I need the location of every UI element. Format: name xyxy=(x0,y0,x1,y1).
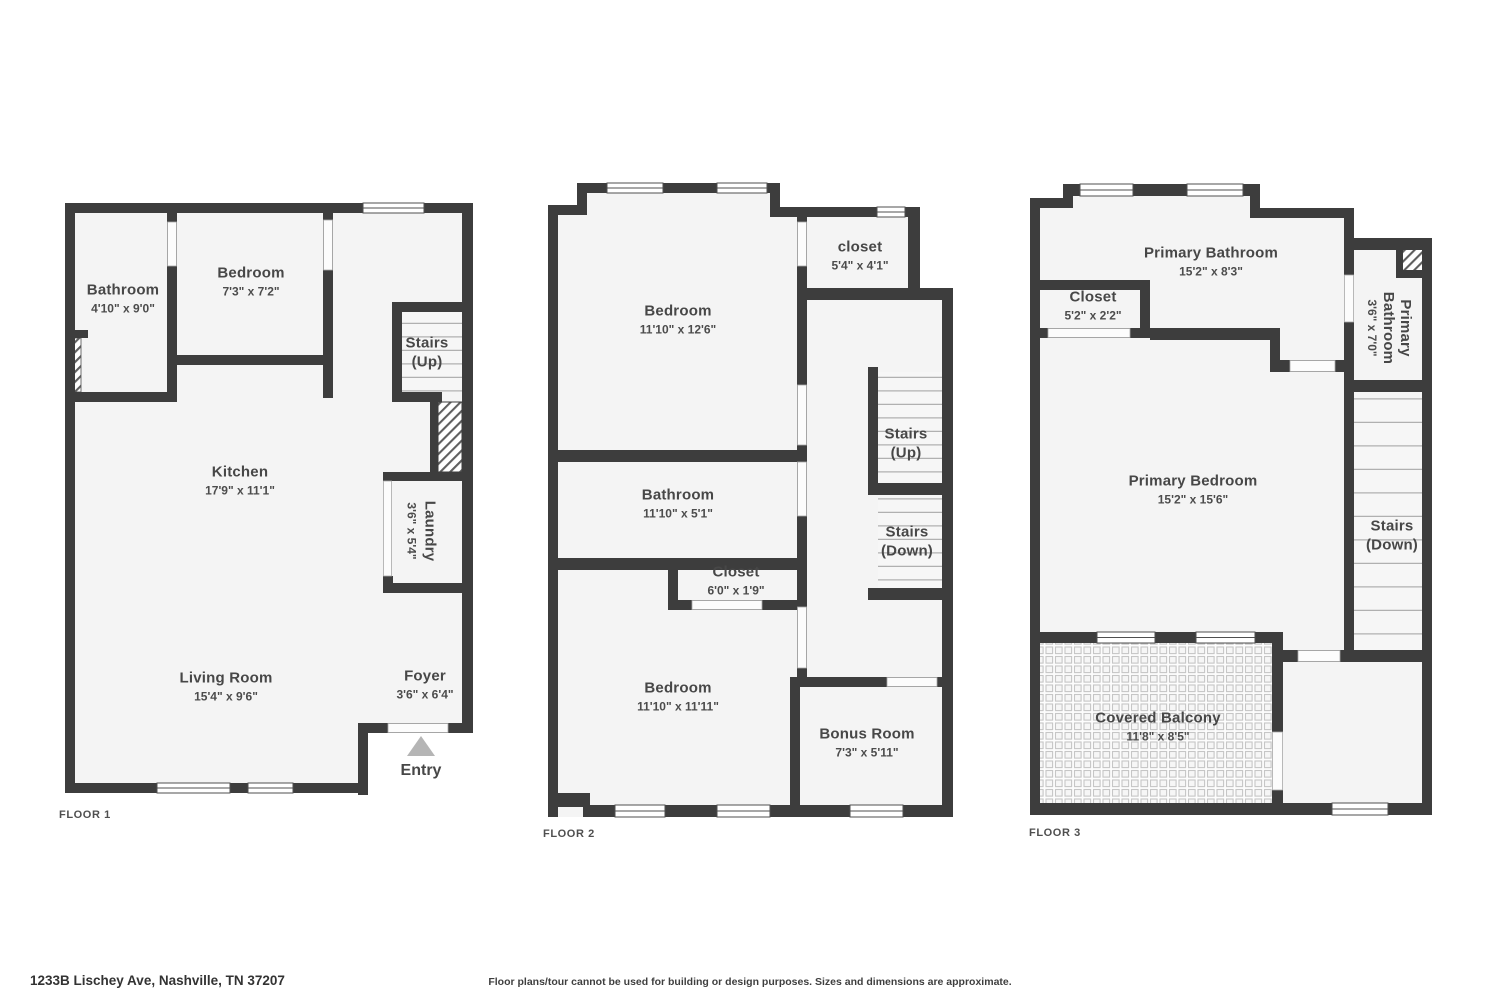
room-dims: 5'2" x 2'2" xyxy=(1064,308,1121,323)
room-dims: 7'3" x 5'11" xyxy=(819,745,914,760)
floor2-bedroom-bottom-label: Bedroom 11'10" x 11'11" xyxy=(637,680,719,715)
room-name: Closet xyxy=(1064,289,1121,308)
room-dims: 6'0" x 1'9" xyxy=(707,583,764,598)
floor1-living-room-label: Living Room 15'4" x 9'6" xyxy=(179,670,272,705)
room-name: Bedroom xyxy=(640,303,716,322)
floor3-primary-bathroom-small-label: Primary Bathroom 3'6" x 7'0" xyxy=(1365,280,1413,376)
room-name: Covered Balcony xyxy=(1095,710,1221,729)
room-name: Stairs xyxy=(1366,517,1418,536)
room-dims: 3'6" x 5'4" xyxy=(404,501,419,562)
room-dims: 15'4" x 9'6" xyxy=(179,689,272,704)
room-dims: 11'10" x 5'1" xyxy=(642,506,714,521)
room-dims: 4'10" x 9'0" xyxy=(87,301,159,316)
room-dims: 11'10" x 12'6" xyxy=(640,322,716,337)
floor3-closet-label: Closet 5'2" x 2'2" xyxy=(1064,289,1121,324)
floor2-stairs-up-label: Stairs (Up) xyxy=(885,425,928,463)
room-name: Bathroom xyxy=(87,282,159,301)
room-dims: (Down) xyxy=(1366,536,1418,555)
floor1-bathroom-label: Bathroom 4'10" x 9'0" xyxy=(87,282,159,317)
room-name: Bedroom xyxy=(217,265,284,284)
floor2-closet-label: Closet 6'0" x 1'9" xyxy=(707,564,764,599)
floor2-bathroom-label: Bathroom 11'10" x 5'1" xyxy=(642,487,714,522)
floor2-closet-small-label: closet 5'4" x 4'1" xyxy=(831,239,888,274)
room-dims: 7'3" x 7'2" xyxy=(217,284,284,299)
floor3-covered-balcony-label: Covered Balcony 11'8" x 8'5" xyxy=(1095,710,1221,745)
floorplan-drawing xyxy=(0,0,1500,999)
room-name: Stairs xyxy=(881,523,933,542)
floor1-foyer-label: Foyer 3'6" x 6'4" xyxy=(396,668,453,703)
room-dims: (Up) xyxy=(885,444,928,463)
room-name: Bonus Room xyxy=(819,726,914,745)
room-name: Stairs xyxy=(885,425,928,444)
room-dims: (Up) xyxy=(406,353,449,372)
floor1-bedroom-label: Bedroom 7'3" x 7'2" xyxy=(217,265,284,300)
floor2-stairs-down-label: Stairs (Down) xyxy=(881,523,933,561)
room-dims: 15'2" x 15'6" xyxy=(1129,492,1258,507)
room-name: Primary Bedroom xyxy=(1129,473,1258,492)
room-dims: 15'2" x 8'3" xyxy=(1144,264,1278,279)
room-name: Bathroom xyxy=(642,487,714,506)
room-name: Stairs xyxy=(406,334,449,353)
footer-disclaimer: Floor plans/tour cannot be used for buil… xyxy=(488,976,1011,988)
floor2-tag: FLOOR 2 xyxy=(543,828,595,840)
floor2-plan xyxy=(548,183,953,817)
room-name: Living Room xyxy=(179,670,272,689)
room-dims: 3'6" x 7'0" xyxy=(1365,280,1378,376)
floor1-stairs-up-label: Stairs (Up) xyxy=(406,334,449,372)
floor2-bedroom-top-label: Bedroom 11'10" x 12'6" xyxy=(640,303,716,338)
floor1-laundry-label: Laundry 3'6" x 5'4" xyxy=(404,501,439,562)
floor2-bonus-room-label: Bonus Room 7'3" x 5'11" xyxy=(819,726,914,761)
room-dims: (Down) xyxy=(881,542,933,561)
room-name: Closet xyxy=(707,564,764,583)
room-dims: 5'4" x 4'1" xyxy=(831,258,888,273)
floor1-hatch-area xyxy=(438,402,462,472)
room-name: Laundry xyxy=(420,501,439,562)
floor3-stairs-down-label: Stairs (Down) xyxy=(1366,517,1418,555)
entry-label: Entry xyxy=(401,762,442,780)
room-dims: 17'9" x 11'1" xyxy=(205,483,275,498)
room-name: Primary Bathroom xyxy=(1144,245,1278,264)
room-name: Primary Bathroom xyxy=(1380,280,1413,376)
room-name: Foyer xyxy=(396,668,453,687)
room-dims: 3'6" x 6'4" xyxy=(396,687,453,702)
room-dims: 11'8" x 8'5" xyxy=(1095,729,1221,744)
room-name: Kitchen xyxy=(205,464,275,483)
room-name: closet xyxy=(831,239,888,258)
floor1-kitchen-label: Kitchen 17'9" x 11'1" xyxy=(205,464,275,499)
entry-arrow-icon xyxy=(407,736,435,756)
floor3-tag: FLOOR 3 xyxy=(1029,827,1081,839)
footer-address: 1233B Lischey Ave, Nashville, TN 37207 xyxy=(30,973,285,988)
room-name: Bedroom xyxy=(637,680,719,699)
floor3-primary-bathroom-label: Primary Bathroom 15'2" x 8'3" xyxy=(1144,245,1278,280)
floor3-primary-bedroom-label: Primary Bedroom 15'2" x 15'6" xyxy=(1129,473,1258,508)
floor1-tag: FLOOR 1 xyxy=(59,809,111,821)
room-dims: 11'10" x 11'11" xyxy=(637,699,719,714)
